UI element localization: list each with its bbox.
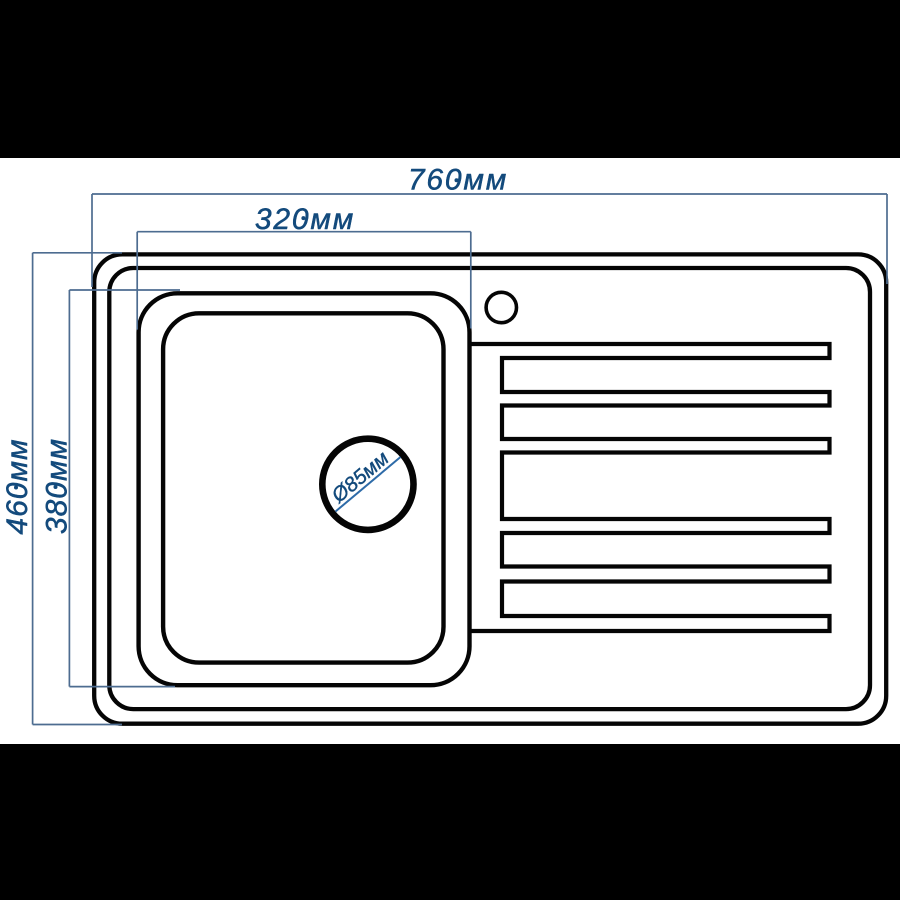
svg-text:320мм: 320мм <box>255 203 355 236</box>
